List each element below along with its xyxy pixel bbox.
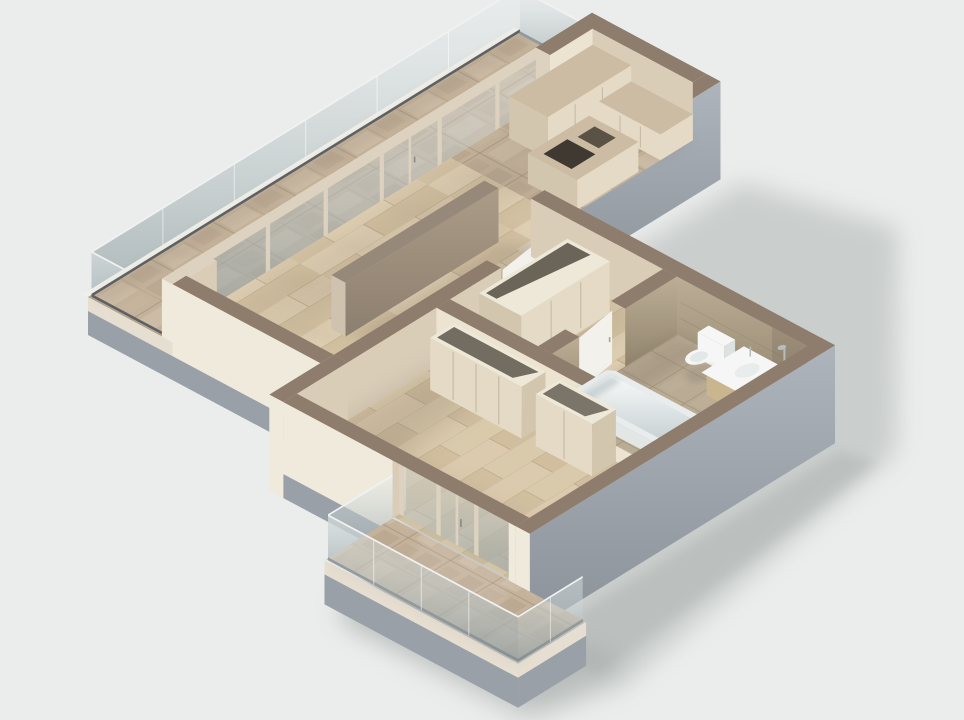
isometric-floorplan-scene bbox=[0, 0, 964, 720]
floorplan-render-stage bbox=[0, 0, 964, 720]
